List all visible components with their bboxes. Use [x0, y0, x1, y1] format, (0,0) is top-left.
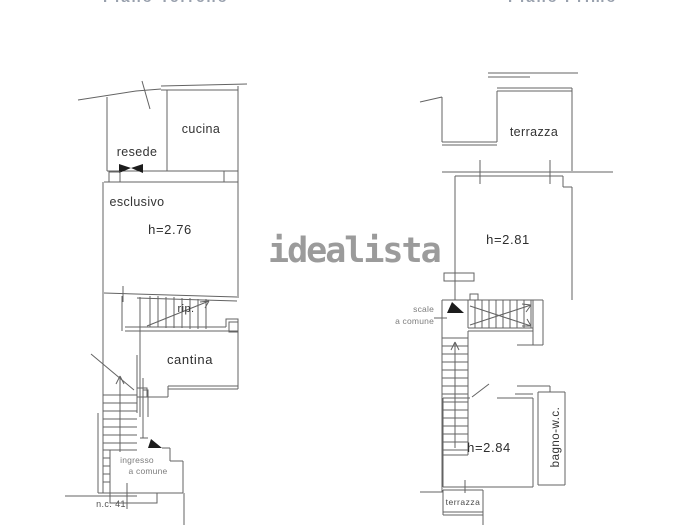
room-label-bagno-wc: bagno-w.c.: [549, 392, 563, 482]
room-label-terrazza-top: terrazza: [494, 124, 574, 141]
scale-label-line1: scale: [396, 304, 434, 315]
ingresso-label-line2: a comune: [123, 466, 173, 477]
room-label-terrazza-bottom: terrazza: [433, 497, 493, 508]
room-label-cucina: cucina: [161, 121, 241, 138]
ingresso-label-line1: ingresso: [112, 455, 162, 466]
height-label-284: h=2.84: [439, 439, 539, 457]
room-label-cantina: cantina: [140, 351, 240, 369]
idealista-watermark: idealista: [268, 231, 440, 271]
floorplan-image: Piano Terreno Piano Primo: [0, 0, 700, 525]
room-label-rip: rip.: [156, 302, 216, 317]
resede-line2: esclusivo: [77, 194, 197, 211]
civic-number-label: n.c. 41: [90, 498, 132, 510]
height-label-281: h=2.81: [458, 231, 558, 249]
height-label-276: h=2.76: [120, 221, 220, 239]
scale-label-line2: a comune: [387, 316, 434, 327]
resede-line1: resede: [77, 144, 197, 161]
